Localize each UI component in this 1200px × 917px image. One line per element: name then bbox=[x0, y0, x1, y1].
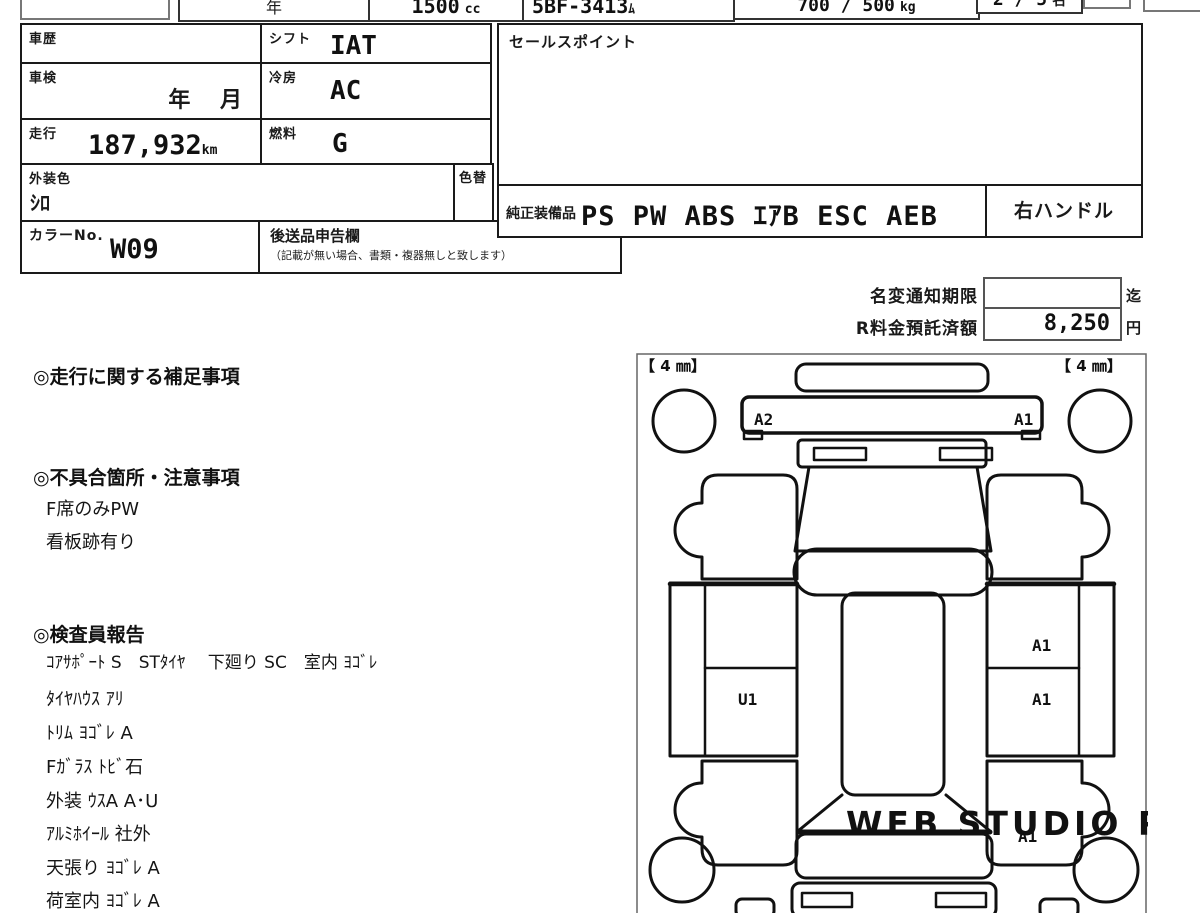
defects-title: ◎不具合箇所・注意事項 bbox=[33, 463, 240, 490]
rear-left-wheel bbox=[650, 838, 714, 902]
color-change-label: 色替 bbox=[459, 167, 487, 186]
top-right-box bbox=[1143, 0, 1200, 12]
load-unit: kg bbox=[900, 0, 916, 15]
name-change-deadline-suffix: 迄 bbox=[1126, 285, 1141, 306]
year-suffix-label: 年 bbox=[180, 0, 368, 18]
shift-value: IAT bbox=[330, 31, 377, 61]
left-side-panel bbox=[670, 583, 797, 756]
color-no-cell: カラーNo. W09 bbox=[20, 220, 262, 274]
shift-cell: シフト IAT bbox=[260, 23, 492, 64]
windshield-bar bbox=[742, 397, 1042, 433]
top-capacity-cell: 2 / 5 名 bbox=[976, 0, 1083, 14]
exterior-color-cell: 外装色 ｼﾛ bbox=[20, 163, 457, 222]
model-code-value: 5BF-3413 bbox=[532, 0, 628, 18]
fuel-value: G bbox=[332, 129, 348, 159]
inspector-report-title: ◎検査員報告 bbox=[33, 620, 145, 647]
inspector-line: ﾄﾘﾑ ﾖｺﾞﾚ A bbox=[46, 719, 133, 745]
mileage-cell: 走行 187,932km bbox=[20, 118, 262, 165]
mileage-value: 187,932 bbox=[88, 130, 202, 161]
roof-front bbox=[794, 549, 992, 595]
inspector-line: 外装 ｳｽA A･U bbox=[46, 787, 158, 813]
inspector-line: 荷室内 ﾖｺﾞﾚ A bbox=[46, 887, 160, 913]
rear-bumper bbox=[792, 883, 996, 913]
inspector-line: Fｶﾞﾗｽ ﾄﾋﾞ石 bbox=[46, 753, 143, 779]
sales-point-box: セールスポイント bbox=[497, 23, 1143, 186]
rear-left-quarter bbox=[675, 761, 797, 865]
top-year-cell: 年 bbox=[178, 0, 370, 22]
shaken-value: 年 月 bbox=[168, 82, 242, 114]
sales-point-label: セールスポイント bbox=[509, 31, 637, 52]
condition-mark: A1 bbox=[1032, 636, 1051, 655]
mileage-unit: km bbox=[202, 143, 218, 158]
history-label: 車歴 bbox=[29, 28, 57, 47]
condition-mark: A1 bbox=[1018, 827, 1037, 846]
rear-lamp-right bbox=[936, 893, 986, 907]
top-load-cell: 700 / 500 kg bbox=[733, 0, 980, 20]
steering-value: 右ハンドル bbox=[987, 196, 1141, 223]
windshield-tab-left bbox=[744, 431, 762, 439]
displacement-value: 1500 bbox=[412, 0, 460, 18]
hood bbox=[795, 467, 991, 551]
roof bbox=[842, 593, 944, 795]
car-condition-diagram: WEB STUDIO PRO 【 4 ㎜】 【 4 ㎜】 bbox=[636, 353, 1148, 913]
rear-lamp-left bbox=[802, 893, 852, 907]
cooling-cell: 冷房 AC bbox=[260, 62, 492, 120]
equipment-cell: 純正装備品 PS PW ABS ｴｱB ESC AEB bbox=[497, 184, 987, 238]
color-no-value: W09 bbox=[110, 234, 159, 265]
windshield-tab-right bbox=[1022, 431, 1040, 439]
front-lamp-right bbox=[940, 448, 992, 460]
cooling-label: 冷房 bbox=[269, 67, 297, 86]
shaken-cell: 車検 年 月 bbox=[20, 62, 262, 120]
shaken-label: 車検 bbox=[29, 67, 57, 86]
front-left-fender bbox=[675, 475, 797, 579]
exterior-color-label: 外装色 bbox=[29, 168, 71, 187]
tread-depth-left-label: 【 4 ㎜】 bbox=[640, 357, 706, 375]
displacement-unit: cc bbox=[465, 2, 481, 17]
inspector-line: ｺｱｻﾎﾟｰﾄ S STﾀｲﾔ 下廻り SC 室内 ﾖｺﾞﾚ bbox=[46, 648, 377, 673]
fuel-label: 燃料 bbox=[269, 123, 297, 142]
shift-label: シフト bbox=[269, 28, 311, 47]
equipment-label: 純正装備品 bbox=[506, 203, 576, 223]
right-side-panel bbox=[987, 583, 1114, 756]
front-right-fender bbox=[987, 475, 1109, 579]
condition-mark: A2 bbox=[754, 410, 773, 429]
recycle-fee-suffix: 円 bbox=[1126, 317, 1141, 338]
defect-item: F席のみPW bbox=[46, 495, 139, 521]
color-change-cell: 色替 bbox=[453, 163, 494, 222]
top-displacement-cell: 1500 cc bbox=[368, 0, 524, 22]
front-lamp-left bbox=[814, 448, 866, 460]
condition-mark: U1 bbox=[738, 690, 757, 709]
top-model-code-cell: 5BF-3413ﾑ bbox=[522, 0, 735, 22]
inspector-line: ｱﾙﾐﾎｲｰﾙ 社外 bbox=[46, 820, 151, 846]
steering-cell: 右ハンドル bbox=[985, 184, 1143, 238]
shipping-declaration-label: 後送品申告欄 bbox=[270, 225, 360, 246]
inspector-line: ﾀｲﾔﾊｳｽ ｱﾘ bbox=[46, 685, 124, 711]
top-empty-box bbox=[20, 0, 170, 20]
name-change-deadline-box bbox=[983, 277, 1122, 309]
color-no-label: カラーNo. bbox=[29, 225, 104, 245]
front-panel bbox=[798, 440, 986, 467]
equipment-items: PS PW ABS ｴｱB ESC AEB bbox=[581, 194, 938, 233]
recycle-fee-label: R料金預託済額 bbox=[790, 314, 978, 339]
condition-mark: A1 bbox=[1032, 690, 1051, 709]
front-left-wheel bbox=[653, 390, 715, 452]
condition-mark: A1 bbox=[1014, 410, 1033, 429]
load-value: 700 / 500 bbox=[797, 0, 895, 16]
defect-item: 看板跡有り bbox=[46, 528, 136, 554]
fuel-cell: 燃料 G bbox=[260, 118, 492, 165]
rear-right-wheel bbox=[1074, 838, 1138, 902]
model-code-suffix: ﾑ bbox=[628, 2, 635, 17]
front-bumper bbox=[796, 364, 988, 391]
capacity-value: 2 / 5 bbox=[993, 0, 1047, 10]
exterior-color-value: ｼﾛ bbox=[30, 187, 50, 216]
running-notes-title: ◎走行に関する補足事項 bbox=[33, 362, 240, 389]
rear-left-tab bbox=[736, 899, 774, 913]
recycle-fee-box: 8,250 bbox=[983, 307, 1122, 341]
history-cell: 車歴 bbox=[20, 23, 262, 64]
cooling-value: AC bbox=[330, 76, 361, 106]
shipping-declaration-note: （記載が無い場合、書類・複器無しと致します） bbox=[270, 247, 512, 263]
inspector-line: 天張り ﾖｺﾞﾚ A bbox=[46, 854, 160, 880]
front-right-wheel bbox=[1069, 390, 1131, 452]
recycle-fee-value: 8,250 bbox=[1044, 311, 1110, 336]
capacity-unit: 名 bbox=[1052, 0, 1066, 9]
mileage-label: 走行 bbox=[29, 123, 57, 142]
tread-depth-right-label: 【 4 ㎜】 bbox=[1056, 357, 1122, 375]
rear-right-tab bbox=[1040, 899, 1078, 913]
name-change-deadline-label: 名変通知期限 bbox=[790, 282, 978, 307]
top-small-box bbox=[1083, 0, 1131, 9]
